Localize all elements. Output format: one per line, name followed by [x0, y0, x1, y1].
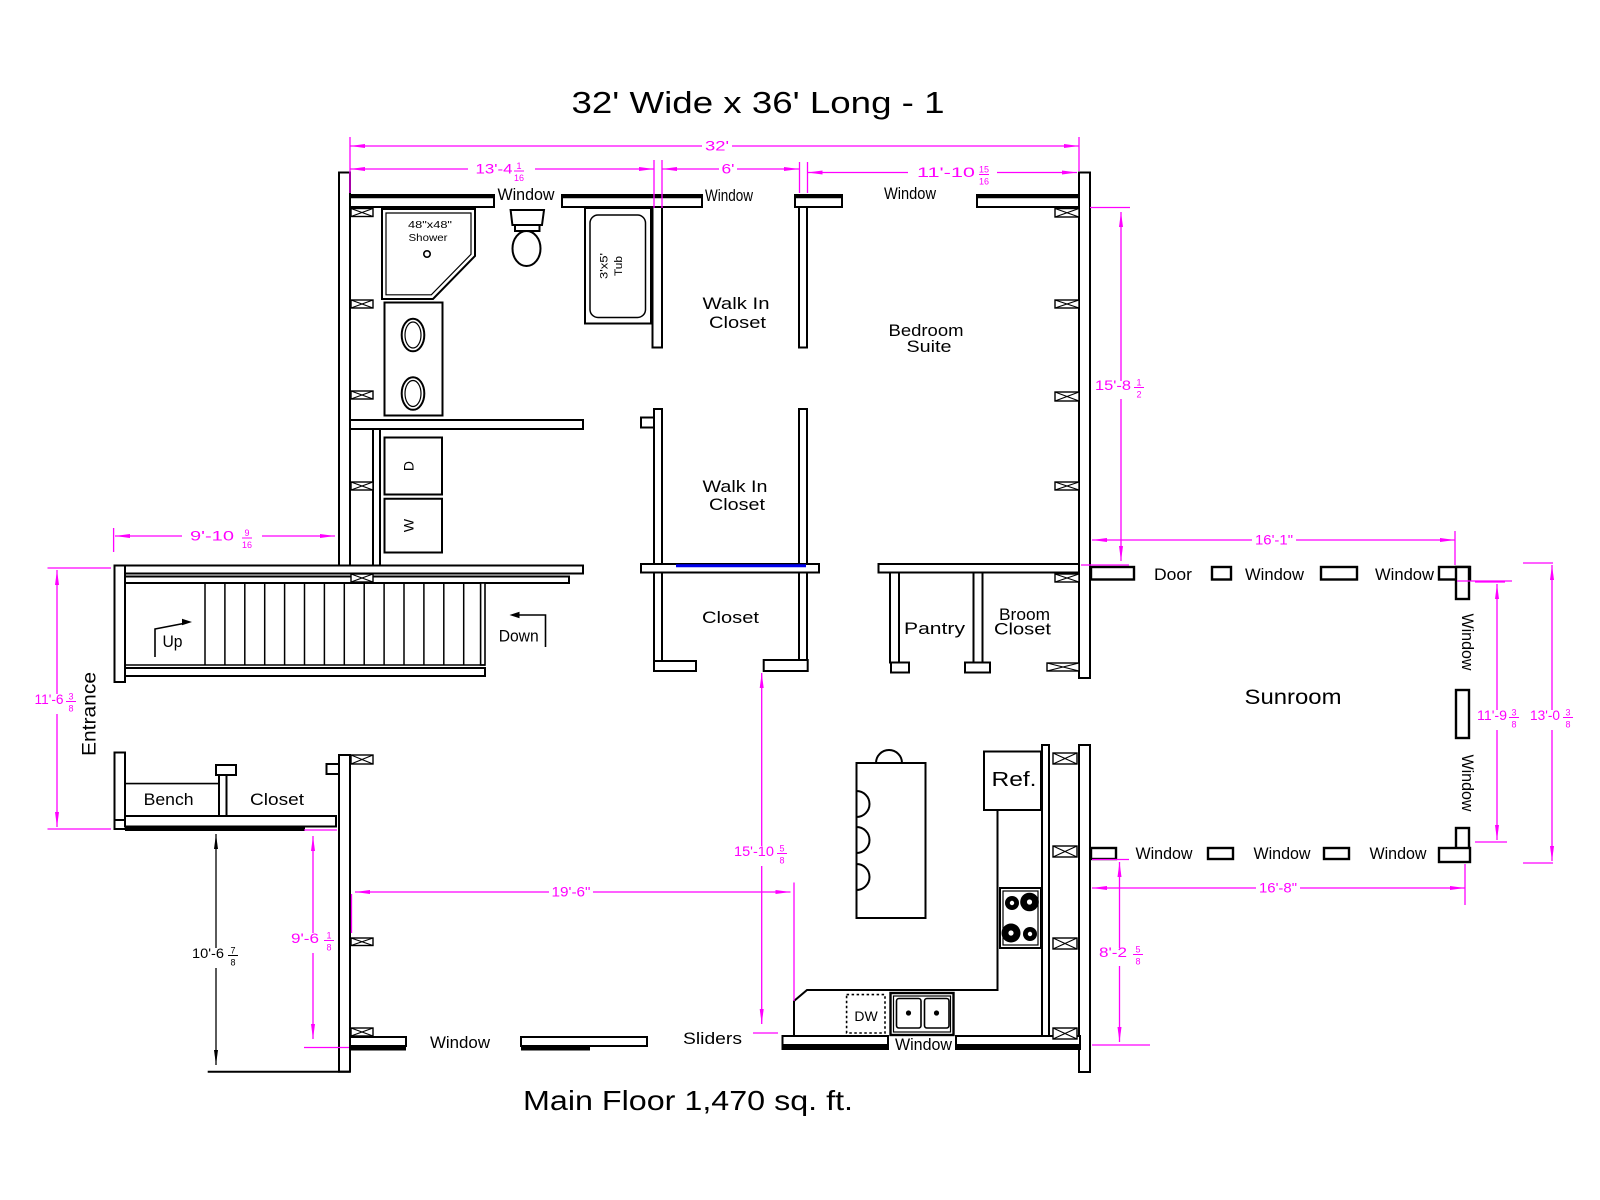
svg-text:1: 1 [1136, 378, 1141, 388]
svg-text:Up: Up [163, 632, 183, 651]
svg-text:16: 16 [242, 540, 252, 550]
svg-text:Walk In: Walk In [703, 294, 770, 313]
svg-text:9'-10: 9'-10 [190, 528, 234, 544]
svg-text:9: 9 [244, 528, 249, 538]
svg-text:3: 3 [1511, 708, 1516, 718]
svg-text:8'-2: 8'-2 [1099, 944, 1127, 960]
svg-text:Window: Window [1245, 565, 1305, 584]
svg-text:Closet: Closet [702, 608, 759, 627]
svg-text:Pantry: Pantry [904, 619, 966, 638]
svg-text:1: 1 [326, 931, 331, 941]
svg-text:Closet: Closet [250, 790, 304, 809]
svg-text:5: 5 [1135, 945, 1140, 955]
svg-text:Window: Window [884, 184, 937, 203]
svg-text:Window: Window [1375, 565, 1435, 584]
svg-text:32': 32' [705, 138, 729, 154]
svg-text:16: 16 [979, 177, 989, 187]
svg-text:8: 8 [1511, 720, 1516, 730]
svg-text:Window: Window [430, 1033, 491, 1052]
svg-text:Window: Window [705, 186, 754, 205]
svg-text:Window: Window [1254, 844, 1312, 863]
svg-text:13'-4: 13'-4 [476, 161, 513, 177]
svg-text:9'-6: 9'-6 [291, 930, 319, 946]
svg-text:15'-8: 15'-8 [1095, 377, 1131, 393]
svg-text:Bench: Bench [144, 790, 194, 809]
svg-text:Shower: Shower [409, 232, 449, 244]
svg-text:Closet: Closet [994, 620, 1051, 639]
svg-text:Down: Down [499, 627, 539, 646]
svg-text:16'-1": 16'-1" [1255, 532, 1293, 548]
svg-text:1: 1 [516, 161, 521, 171]
svg-text:Window: Window [895, 1035, 953, 1054]
svg-text:8: 8 [230, 958, 235, 968]
svg-text:Main Floor 1,470 sq. ft.: Main Floor 1,470 sq. ft. [523, 1085, 853, 1116]
svg-text:5: 5 [779, 844, 784, 854]
svg-text:16: 16 [514, 173, 524, 183]
svg-text:32' Wide x 36' Long - 1: 32' Wide x 36' Long - 1 [572, 85, 945, 120]
svg-text:Closet: Closet [709, 313, 766, 332]
svg-text:8: 8 [1565, 720, 1570, 730]
svg-text:8: 8 [326, 943, 331, 953]
svg-text:W: W [401, 518, 417, 532]
svg-text:48"x48": 48"x48" [408, 219, 452, 231]
svg-text:D: D [401, 461, 417, 471]
svg-text:15: 15 [979, 165, 989, 175]
svg-text:10'-6: 10'-6 [192, 945, 224, 961]
svg-text:6': 6' [722, 161, 735, 177]
svg-text:Closet: Closet [709, 495, 765, 514]
svg-text:15'-10: 15'-10 [734, 843, 774, 859]
svg-text:Suite: Suite [907, 337, 952, 356]
svg-text:19'-6": 19'-6" [552, 884, 591, 900]
svg-text:Entrance: Entrance [80, 672, 101, 756]
svg-text:Sliders: Sliders [683, 1029, 742, 1048]
svg-text:Window: Window [498, 185, 556, 204]
svg-text:Window: Window [1458, 614, 1477, 672]
svg-text:3: 3 [1565, 708, 1570, 718]
svg-text:2: 2 [1136, 390, 1141, 400]
svg-text:Sunroom: Sunroom [1245, 686, 1342, 709]
svg-text:11'-9: 11'-9 [1477, 707, 1507, 723]
svg-text:DW: DW [854, 1008, 878, 1024]
svg-text:8: 8 [779, 856, 784, 866]
svg-text:Walk In: Walk In [703, 477, 768, 496]
svg-text:Window: Window [1136, 844, 1194, 863]
svg-text:11'-6: 11'-6 [35, 691, 64, 707]
svg-text:7: 7 [230, 946, 235, 956]
svg-text:3'x5': 3'x5' [599, 253, 611, 279]
svg-text:Tub: Tub [613, 256, 625, 276]
svg-text:3: 3 [68, 692, 73, 702]
svg-text:16'-8": 16'-8" [1259, 880, 1297, 896]
svg-text:Ref.: Ref. [992, 769, 1037, 791]
svg-text:13'-0: 13'-0 [1530, 707, 1560, 723]
svg-text:Window: Window [1458, 755, 1477, 813]
svg-text:Window: Window [1370, 844, 1428, 863]
svg-text:8: 8 [68, 704, 73, 714]
svg-text:Door: Door [1154, 565, 1192, 584]
svg-text:8: 8 [1135, 957, 1140, 967]
svg-text:11'-10: 11'-10 [917, 164, 975, 180]
